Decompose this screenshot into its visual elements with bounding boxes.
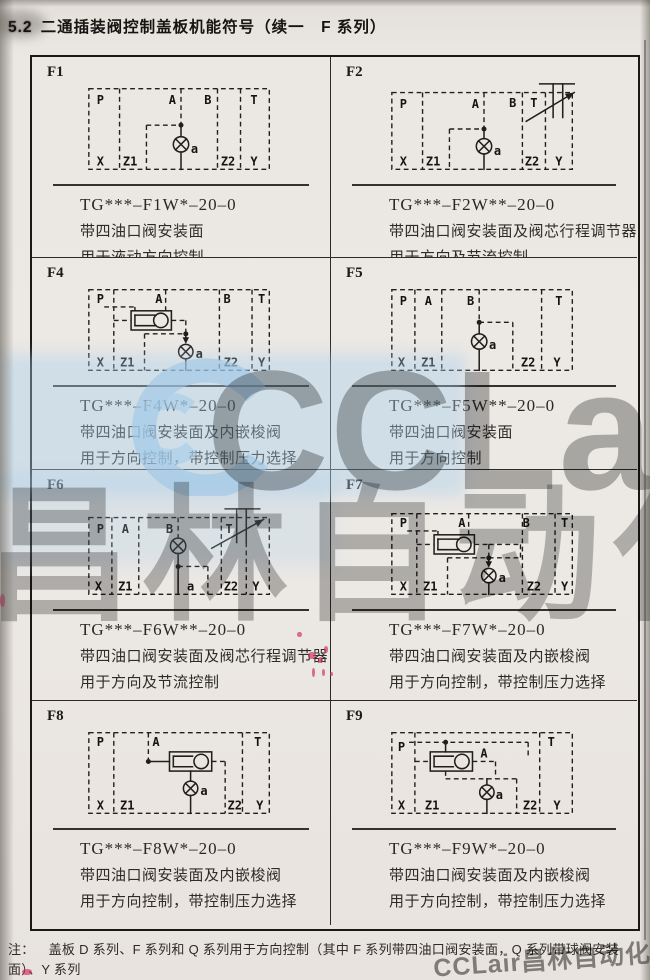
table-cell-F1: F1 P [32, 57, 331, 258]
schematic-port-labels: P A B T X Z1 a Z2 Y [97, 93, 259, 168]
schematic-lines [89, 290, 269, 371]
port-label: A [472, 97, 480, 111]
port-label: Z1 [120, 355, 134, 369]
hydraulic-schematic-F7: P A B T X Z1 a Z2 Y [388, 506, 580, 602]
cell-id: F9 [331, 701, 637, 725]
port-label: A [155, 292, 163, 306]
port-label: B [166, 522, 173, 536]
ink-speck [324, 646, 328, 653]
port-label: a [191, 142, 198, 156]
port-label: T [561, 516, 568, 530]
port-label: P [400, 97, 407, 111]
port-label: Z1 [120, 798, 134, 812]
port-label: T [254, 735, 261, 749]
port-label: a [187, 579, 194, 593]
footnote: 注：盖板 D 系列、F 系列和 Q 系列用于方向控制（其中 F 系列带四油口阀安… [8, 940, 644, 980]
desc-line-1: 带四油口阀安装面及内嵌梭阀 [80, 864, 330, 885]
cell-divider [352, 385, 615, 387]
port-label: T [555, 294, 562, 308]
desc-line-1: 带四油口阀安装面及内嵌梭阀 [389, 864, 637, 885]
port-label: X [97, 154, 105, 168]
cell-id: F5 [331, 258, 637, 282]
model-code: TG***–F1W*–20–0 [80, 195, 330, 215]
port-label: a [494, 144, 501, 158]
cell-divider [53, 828, 309, 830]
port-label: A [169, 93, 177, 107]
port-label: Z2 [224, 355, 238, 369]
port-label: P [400, 516, 407, 530]
hydraulic-schematic-F5: P A B T X Z1 a Z2 Y [388, 282, 580, 378]
port-label: B [223, 292, 230, 306]
port-label: a [499, 571, 506, 585]
port-label: X [95, 579, 103, 593]
port-label: Y [555, 154, 563, 168]
model-code: TG***–F6W**–20–0 [80, 620, 330, 640]
desc-line-1: 带四油口阀安装面 [80, 220, 330, 241]
desc-line-1: 带四油口阀安装面 [389, 421, 637, 442]
port-label: Y [561, 579, 569, 593]
table-cell-F8: F8 [32, 701, 331, 925]
ink-speck [322, 669, 325, 676]
port-label: B [523, 516, 530, 530]
model-code: TG***–F9W*–20–0 [389, 839, 637, 859]
hydraulic-schematic-F6: P A B T X Z1 a Z2 Y [85, 506, 277, 602]
port-label: A [152, 735, 160, 749]
port-label: Y [250, 154, 258, 168]
schematic-lines [392, 514, 572, 595]
model-code: TG***–F7W*–20–0 [389, 620, 637, 640]
port-label: a [489, 338, 496, 352]
cell-divider [53, 609, 309, 611]
cell-divider [53, 184, 309, 186]
cell-divider [53, 385, 309, 387]
scanned-catalog-page: 5.2二通插装阀控制盖板机能符号（续一 F 系列） F1 [0, 0, 650, 980]
port-label: P [97, 93, 104, 107]
port-label: A [480, 747, 488, 761]
desc-line-2: 用于液动方向控制 [80, 246, 330, 258]
port-label: Z1 [123, 154, 137, 168]
port-label: Z2 [525, 154, 539, 168]
port-label: T [258, 292, 265, 306]
cell-id: F6 [32, 470, 330, 494]
desc-line-2: 用于方向及节流控制 [80, 671, 330, 692]
desc-line-1: 带四油口阀安装面及内嵌梭阀 [80, 421, 330, 442]
ink-speck [308, 652, 316, 659]
scan-edge-top [0, 0, 650, 7]
port-label: X [398, 355, 406, 369]
port-label: Z2 [228, 798, 242, 812]
hydraulic-schematic-F4: P A B T X Z1 a Z2 Y [85, 282, 277, 378]
port-label: X [400, 154, 408, 168]
port-label: A [122, 522, 130, 536]
port-label: Z1 [423, 579, 437, 593]
port-label: B [509, 96, 516, 110]
cell-id: F4 [32, 258, 330, 282]
hydraulic-schematic-F9: P A T X Z1 a Z2 Y [388, 725, 580, 821]
hydraulic-schematic-F2: P A B T X Z1 a Z2 Y [388, 81, 580, 177]
port-label: Y [553, 798, 561, 812]
port-label: Z1 [425, 798, 439, 812]
port-label: Z2 [224, 579, 238, 593]
model-code: TG***–F2W**–20–0 [389, 195, 637, 215]
desc-line-2: 用于方向控制，带控制压力选择 [80, 447, 330, 468]
port-label: A [425, 294, 433, 308]
desc-line-2: 用于方向控制，带控制压力选择 [389, 890, 637, 911]
port-label: B [467, 294, 474, 308]
table-cell-F5: F5 P [331, 258, 637, 470]
port-label: P [97, 522, 104, 536]
model-code: TG***–F5W**–20–0 [389, 396, 637, 416]
desc-line-1: 带四油口阀安装面及阀芯行程调节器 [80, 645, 330, 666]
cell-id: F1 [32, 57, 330, 81]
port-label: X [97, 355, 105, 369]
schematic-lines [392, 84, 574, 169]
port-label: X [97, 798, 105, 812]
desc-line-2: 用于方向及节流控制 [389, 246, 637, 258]
port-label: X [400, 579, 408, 593]
desc-line-2: 用于方向控制，带控制压力选择 [80, 890, 330, 911]
schematic-lines [89, 509, 269, 594]
desc-line-2: 用于方向控制，带控制压力选择 [389, 671, 637, 692]
port-label: T [250, 93, 257, 107]
cell-id: F7 [331, 470, 637, 494]
cell-divider [352, 828, 615, 830]
port-label: Z2 [527, 579, 541, 593]
port-label: Z1 [426, 154, 440, 168]
schematic-port-labels: P A T X Z1 a Z2 Y [398, 735, 562, 812]
table-cell-F4: F4 [32, 258, 331, 470]
section-title-text: 二通插装阀控制盖板机能符号（续一 F 系列） [41, 19, 387, 36]
desc-line-1: 带四油口阀安装面及内嵌梭阀 [389, 645, 637, 666]
port-label: T [548, 735, 555, 749]
cell-id: F2 [331, 57, 637, 81]
ink-speck [22, 969, 32, 975]
port-label: T [530, 96, 537, 110]
port-label: Y [252, 579, 260, 593]
cell-divider [352, 609, 615, 611]
symbol-table: F1 P [30, 55, 640, 931]
port-label: P [398, 740, 405, 754]
schematic-port-labels: P A B T X Z1 a Z2 Y [398, 294, 563, 369]
port-label: A [458, 516, 466, 530]
port-label: Y [256, 798, 264, 812]
table-cell-F7: F7 [331, 470, 637, 701]
port-label: Z2 [523, 798, 537, 812]
port-label: Y [258, 355, 266, 369]
port-label: Z2 [521, 355, 535, 369]
table-cell-F2: F2 [331, 57, 637, 258]
port-label: P [97, 735, 104, 749]
port-label: a [200, 784, 207, 798]
port-label: a [196, 347, 203, 361]
schematic-lines [89, 89, 269, 170]
port-label: Z1 [118, 579, 132, 593]
ink-speck [330, 672, 333, 676]
port-label: X [398, 798, 406, 812]
schematic-port-labels: P A T X Z1 a Z2 Y [97, 735, 264, 812]
scan-edge-left [0, 0, 14, 980]
model-code: TG***–F8W*–20–0 [80, 839, 330, 859]
model-code: TG***–F4W*–20–0 [80, 396, 330, 416]
port-label: Z1 [421, 355, 435, 369]
page-title: 5.2二通插装阀控制盖板机能符号（续一 F 系列） [8, 15, 386, 37]
port-label: Y [553, 355, 561, 369]
schematic-lines [392, 733, 572, 814]
port-label: T [225, 522, 232, 536]
hydraulic-schematic-F8: P A T X Z1 a Z2 Y [85, 725, 277, 821]
cell-divider [352, 184, 615, 186]
table-cell-F9: F9 [331, 701, 637, 925]
scan-edge-line [644, 40, 646, 940]
port-label: Z2 [221, 154, 235, 168]
hydraulic-schematic-F1: P A B T X Z1 a Z2 Y [85, 81, 277, 177]
schematic-lines [89, 733, 269, 814]
cell-id: F8 [32, 701, 330, 725]
schematic-port-labels: P A B T X Z1 a Z2 Y [400, 96, 564, 169]
port-label: P [400, 294, 407, 308]
ink-speck [297, 632, 302, 637]
schematic-lines [392, 290, 572, 371]
port-label: a [496, 788, 503, 802]
port-label: P [97, 292, 104, 306]
ink-speck [312, 668, 315, 677]
footnote-line-1: 盖板 D 系列、F 系列和 Q 系列用于方向控制（其中 F 系列带四油口阀安装面… [8, 942, 619, 977]
port-label: B [204, 93, 211, 107]
ink-speck [318, 657, 323, 663]
desc-line-1: 带四油口阀安装面及阀芯行程调节器 [389, 220, 637, 241]
table-cell-F6: F6 [32, 470, 331, 701]
desc-line-2: 用于方向控制 [389, 447, 637, 468]
